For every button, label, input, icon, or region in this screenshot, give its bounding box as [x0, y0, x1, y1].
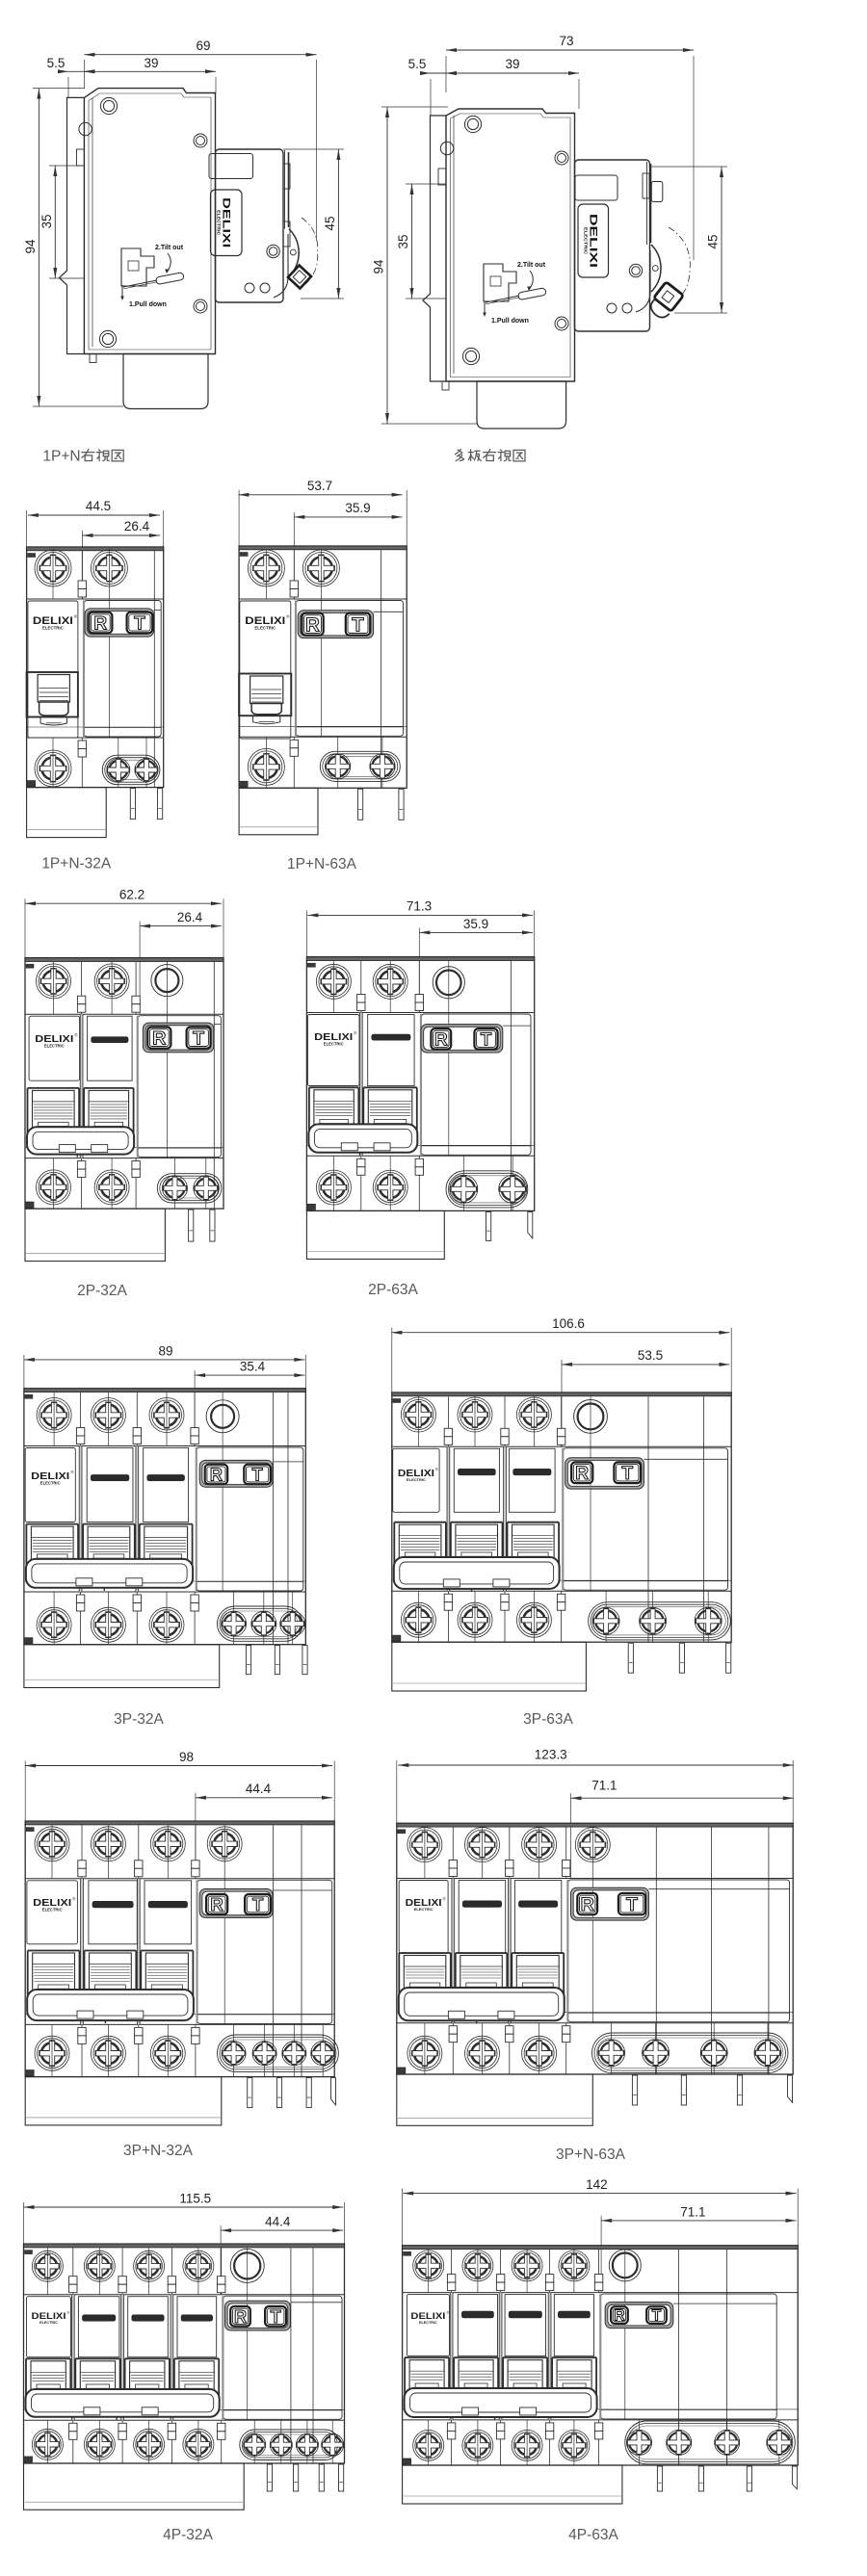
svg-text:5.5: 5.5: [47, 56, 66, 70]
svg-text:DELIXI: DELIXI: [221, 197, 232, 247]
svg-text:35.9: 35.9: [345, 501, 370, 515]
svg-text:T: T: [626, 1894, 638, 1915]
svg-text:39: 39: [505, 57, 519, 71]
svg-text:R: R: [234, 2307, 247, 2327]
svg-text:71.1: 71.1: [680, 2205, 705, 2220]
svg-text:R: R: [575, 1464, 589, 1484]
svg-text:R: R: [614, 2308, 624, 2325]
svg-text:94: 94: [23, 239, 38, 254]
svg-text:ELECTRIC: ELECTRIC: [42, 1907, 63, 1912]
svg-text:44.4: 44.4: [246, 1782, 272, 1796]
svg-text:3P+N-63A: 3P+N-63A: [556, 2147, 626, 2163]
svg-text:DELIXI: DELIXI: [588, 214, 599, 268]
svg-text:35.9: 35.9: [463, 917, 488, 931]
svg-text:26.4: 26.4: [124, 519, 150, 533]
svg-text:69: 69: [196, 39, 210, 53]
svg-text:T: T: [271, 2307, 281, 2327]
svg-text:71.1: 71.1: [591, 1779, 617, 1793]
svg-text:R: R: [210, 1465, 223, 1484]
svg-text:T: T: [252, 1465, 263, 1484]
svg-text:1P+N-32A: 1P+N-32A: [41, 856, 112, 872]
svg-text:T: T: [252, 1894, 264, 1914]
svg-text:3P-32A: 3P-32A: [114, 1711, 164, 1728]
svg-text:T: T: [134, 613, 145, 634]
svg-text:R: R: [434, 1030, 448, 1051]
svg-text:94: 94: [372, 259, 386, 274]
svg-text:35.4: 35.4: [240, 1360, 266, 1374]
svg-text:62.2: 62.2: [119, 888, 144, 902]
svg-text:ELECTRIC: ELECTRIC: [216, 210, 221, 235]
svg-text:T: T: [352, 615, 364, 637]
svg-text:73: 73: [559, 34, 573, 48]
svg-text:44.4: 44.4: [265, 2215, 291, 2229]
svg-text:89: 89: [158, 1344, 172, 1359]
svg-text:DELIXI: DELIXI: [410, 2311, 445, 2321]
svg-text:2.Tilt out: 2.Tilt out: [155, 245, 184, 251]
svg-text:ELECTRIC: ELECTRIC: [39, 2321, 58, 2325]
svg-text:71.3: 71.3: [407, 899, 432, 914]
svg-text:R: R: [152, 1028, 166, 1050]
svg-text:4P-32A: 4P-32A: [163, 2527, 213, 2543]
svg-text:1P+N-63A: 1P+N-63A: [287, 856, 357, 872]
svg-text:45: 45: [323, 216, 337, 230]
svg-text:T: T: [621, 1464, 633, 1484]
svg-text:53.7: 53.7: [307, 479, 332, 493]
svg-text:®: ®: [435, 1468, 438, 1472]
svg-text:1.Pull down: 1.Pull down: [491, 318, 529, 325]
svg-text:ELECTRIC: ELECTRIC: [44, 1043, 65, 1048]
svg-text:ELECTRIC: ELECTRIC: [40, 1480, 61, 1485]
svg-text:53.5: 53.5: [638, 1348, 663, 1363]
svg-text:3P-63A: 3P-63A: [523, 1711, 573, 1728]
svg-text:®: ®: [67, 2310, 70, 2315]
svg-text:5.5: 5.5: [408, 57, 427, 71]
svg-text:45: 45: [706, 234, 721, 248]
svg-text:123.3: 123.3: [535, 1748, 567, 1762]
svg-text:2P-63A: 2P-63A: [368, 1282, 418, 1298]
svg-text:4P-63A: 4P-63A: [568, 2527, 618, 2543]
svg-text:2P-32A: 2P-32A: [77, 1283, 127, 1299]
svg-text:ELECTRIC: ELECTRIC: [42, 626, 65, 631]
svg-text:26.4: 26.4: [177, 910, 203, 924]
svg-text:39: 39: [144, 56, 158, 70]
svg-text:®: ®: [446, 2310, 449, 2315]
svg-text:R: R: [93, 613, 107, 634]
svg-text:98: 98: [179, 1750, 194, 1764]
svg-text:R: R: [305, 615, 320, 637]
svg-text:T: T: [193, 1028, 204, 1050]
svg-text:R: R: [581, 1894, 594, 1915]
svg-text:106.6: 106.6: [552, 1316, 585, 1331]
svg-text:T: T: [652, 2308, 662, 2325]
svg-text:DELIXI: DELIXI: [32, 2311, 66, 2321]
svg-text:®: ®: [443, 1897, 446, 1902]
svg-text:142: 142: [586, 2177, 608, 2192]
svg-text:35: 35: [396, 234, 410, 248]
svg-text:ELECTRIC: ELECTRIC: [407, 1477, 426, 1482]
svg-text:T: T: [481, 1030, 492, 1051]
svg-text:1.Pull down: 1.Pull down: [129, 301, 167, 308]
svg-text:ELECTRIC: ELECTRIC: [254, 626, 276, 631]
svg-text:2.Tilt out: 2.Tilt out: [517, 262, 546, 269]
svg-text:1P+N: 1P+N: [42, 449, 80, 465]
svg-text:44.5: 44.5: [86, 499, 111, 513]
svg-text:R: R: [210, 1894, 223, 1914]
svg-text:115.5: 115.5: [179, 2192, 211, 2206]
svg-text:ELECTRIC: ELECTRIC: [414, 1907, 433, 1912]
svg-text:35: 35: [39, 214, 54, 228]
svg-text:ELECTRIC: ELECTRIC: [419, 2321, 437, 2325]
svg-text:ELECTRIC: ELECTRIC: [583, 227, 588, 254]
svg-text:3P+N-32A: 3P+N-32A: [123, 2143, 194, 2159]
svg-text:ELECTRIC: ELECTRIC: [324, 1041, 344, 1046]
